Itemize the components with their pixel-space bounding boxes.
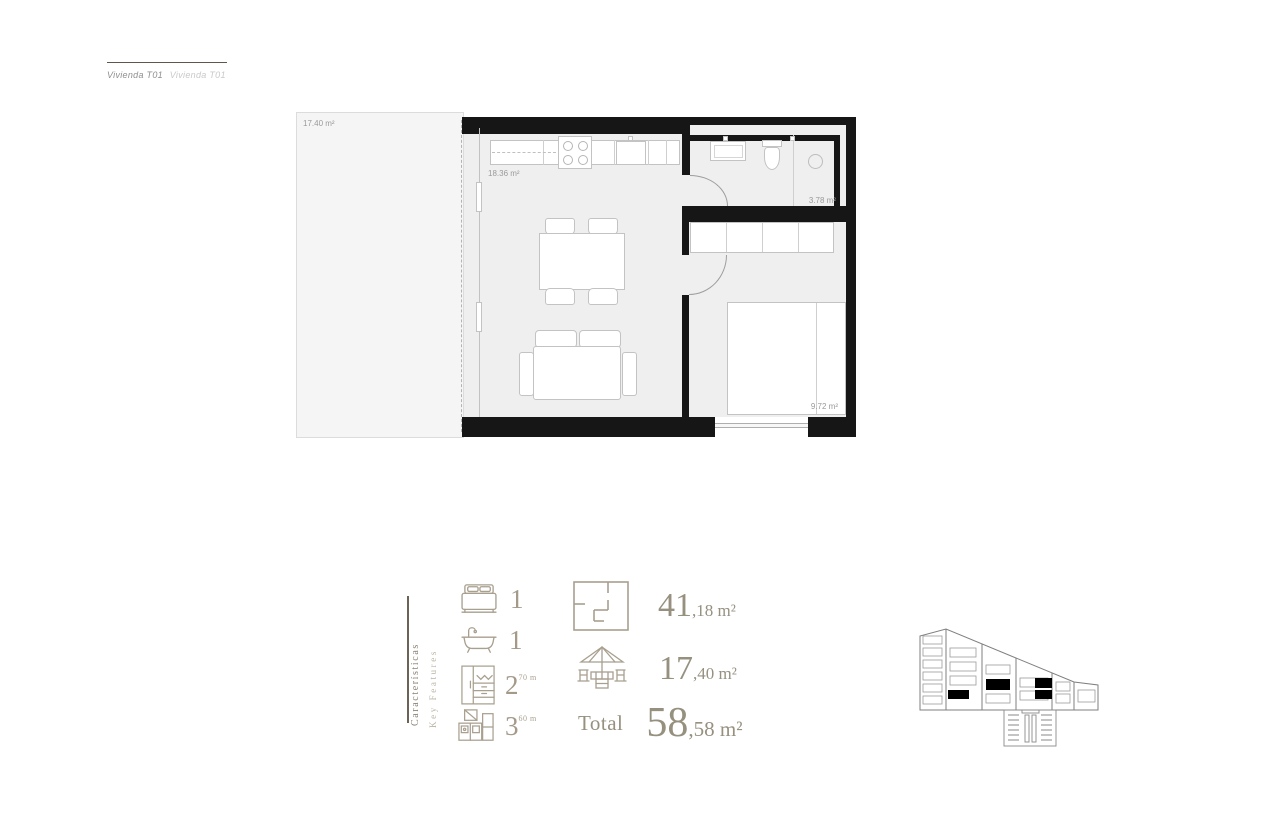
total-label: Total [578,711,623,736]
shower-drain [808,154,823,169]
feature-row-bedrooms: 1 [458,583,524,615]
bathroom-faucet [723,136,728,141]
page-title: Vivienda T01 Vivienda T01 [107,70,226,80]
wall-segment-top-living [462,117,683,134]
wall-segment-living-bath [682,117,690,175]
feature-row-wardrobe: 270 m [461,665,537,705]
kitchen-faucet [628,136,633,141]
bathtub-icon [459,624,499,656]
floorplan-icon [572,580,630,632]
shower-faucet [790,136,795,141]
wall-segment-bath-bedroom [682,206,856,222]
area-row-terrace: 17,40 m² [575,645,737,693]
total-area-value: 58,58 m² [646,702,742,744]
bedrooms-count: 1 [510,586,524,613]
wall-segment-bottom-bedroom [808,417,856,437]
counter-division [666,140,667,165]
building-location-diagram [916,620,1102,750]
kitchen-length: 360 m [505,713,537,740]
sliding-door-panel [476,182,482,212]
features-rule [407,596,409,723]
bed-icon [458,583,500,615]
title-secondary: Vivienda T01 [170,70,226,80]
sofa-armrest [519,352,534,396]
stair-tower [1004,710,1056,746]
dining-chair [545,288,575,305]
dining-table [539,233,625,290]
brochure-page: Vivienda T01 Vivienda T01 17.40 m² [0,0,1280,830]
bathroom-sink-basin [714,145,743,158]
title-rule [107,62,227,63]
area-row-interior: 41,18 m² [572,580,736,632]
bedroom-window [715,423,808,428]
sofa-seat [533,346,621,400]
feature-row-kitchen: 360 m [457,708,537,744]
counter-division [614,140,615,165]
bed [727,302,846,415]
features-heading-primary: Características [410,596,421,726]
floor-plan: 17.40 m² 18.36 [296,112,856,438]
bathroom-area-label: 3.78 m² [788,196,836,205]
kitchen-icon [457,708,495,744]
terrace-boundary-dashed-line [461,120,462,432]
wall-segment-bedroom-left-lower [682,295,689,417]
closet [690,222,834,253]
living-area-label: 18.36 m² [488,169,520,178]
dining-chair [588,288,618,305]
interior-area-value: 41,18 m² [658,589,736,623]
terrace-icon [575,645,629,693]
bedroom-area-label: 9.72 m² [786,402,838,411]
sliding-door-line [479,128,480,417]
wardrobe-icon [461,665,495,705]
wall-segment-bedroom-left-upper [682,222,689,255]
wardrobe-length: 270 m [505,672,537,699]
bathrooms-count: 1 [509,627,523,654]
kitchen-sink [616,141,646,165]
title-primary: Vivienda T01 [107,70,163,80]
sliding-door-panel [476,302,482,332]
features-heading-secondary: Key Features [428,598,438,728]
appliance-dashed-line [492,152,556,153]
terrace-area-value: 17,40 m² [659,652,737,686]
terrace-area-label: 17.40 m² [303,119,335,128]
wall-segment-bottom-living [462,417,715,437]
toilet-tank [762,140,782,147]
wall-segment-right [846,117,856,437]
area-row-total: Total 58,58 m² [578,702,743,744]
terrace-area [296,112,464,438]
feature-row-bathrooms: 1 [459,624,523,656]
stove [558,136,592,169]
counter-division [648,140,649,165]
sofa-armrest [622,352,637,396]
